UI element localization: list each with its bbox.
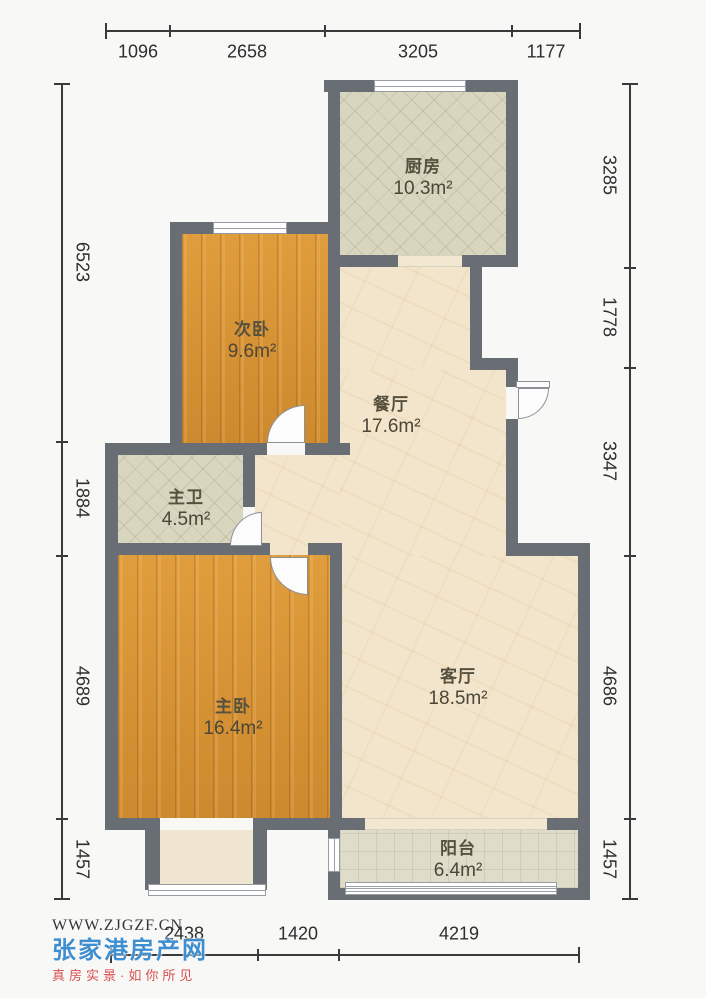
room-name: 主卧 [203,692,262,717]
wall-segment [462,255,518,267]
watermark-slogan: 真房实景·如你所见 [52,968,208,984]
dim-label: 1457 [72,839,93,879]
hallway-floor [255,455,340,555]
wall-segment [105,818,160,830]
dimension-line-left [61,83,63,900]
dim-tick [338,949,340,961]
room-name: 餐厅 [361,390,420,415]
dim-tick [169,25,171,37]
dim-label: 3347 [599,441,620,481]
dim-label: 2658 [227,42,267,63]
room-name: 次卧 [228,315,277,340]
dim-tick [624,267,636,269]
wall-segment [506,419,518,555]
kitchen-opening [398,255,462,267]
dim-tick [622,898,638,900]
dim-label: 6523 [72,242,93,282]
dimension-line-top [105,30,580,32]
wall-segment [253,830,267,890]
room-name: 客厅 [428,662,487,687]
wall-segment [170,222,182,455]
wall-segment [578,830,590,900]
wall-segment [105,443,118,830]
balcony-side-window [328,838,340,872]
room-area: 16.4m² [203,718,262,740]
room-area: 4.5m² [162,509,211,531]
room-label-kitchen: 厨房 10.3m² [393,152,452,200]
room-label-balcony: 阳台 6.4m² [434,834,483,882]
dim-tick [324,25,326,37]
room-label-master-bath: 主卫 4.5m² [162,483,211,531]
dimension-line-right [629,83,631,900]
dim-label: 1177 [527,42,566,63]
master-bedroom-floor [118,555,330,818]
room-label-master-bedroom: 主卧 16.4m² [203,692,262,740]
dim-tick [56,555,68,557]
entry-door-arc [518,388,549,419]
dim-label: 1457 [599,839,620,879]
bay-window-floor [160,830,253,886]
watermark: WWW.ZJGZF.CN 张家港房产网 真房实景·如你所见 [52,916,208,984]
balcony-window [345,882,557,895]
kitchen-window [374,80,466,92]
room-area: 9.6m² [228,341,277,363]
watermark-url: WWW.ZJGZF.CN [52,916,208,936]
wall-segment [330,555,342,830]
wall-segment [145,830,160,890]
room-area: 6.4m² [434,860,483,882]
dim-tick [624,555,636,557]
room-label-dining: 餐厅 17.6m² [361,390,420,438]
second-bedroom-window [213,222,287,234]
floor-plan: 厨房 10.3m² 次卧 9.6m² 餐厅 17.6m² 主卫 4.5m² 主卧… [0,0,706,998]
dim-label: 3205 [398,42,438,63]
bay-window [148,884,266,896]
dim-tick [579,23,581,39]
dim-label: 4689 [72,666,93,706]
wall-segment [470,358,518,370]
wall-segment [287,222,340,234]
dim-tick [257,949,259,961]
wall-segment [170,443,267,455]
dim-label: 1420 [278,924,318,945]
wall-segment [305,443,350,455]
dim-label: 1778 [599,297,620,337]
wall-segment [547,818,590,830]
dining-floor [340,267,470,370]
room-area: 10.3m² [393,178,452,200]
wall-segment [470,267,482,370]
room-area: 17.6m² [361,416,420,438]
dim-tick [622,83,638,85]
dim-tick [54,83,70,85]
dim-label: 1096 [118,42,158,63]
room-name: 阳台 [434,834,483,859]
dim-tick [56,818,68,820]
room-label-second-bedroom: 次卧 9.6m² [228,315,277,363]
dim-tick [578,947,580,963]
dim-tick [511,25,513,37]
entry-door-leaf [516,381,550,388]
dim-tick [105,23,107,39]
wall-segment [328,818,340,840]
dim-tick [56,441,68,443]
room-area: 18.5m² [428,688,487,710]
balcony-opening [365,818,547,830]
dim-tick [624,818,636,820]
wall-segment [506,80,518,267]
room-name: 厨房 [393,152,452,177]
dim-label: 4219 [439,924,479,945]
wall-segment [308,543,342,555]
wall-segment [243,455,255,507]
watermark-site-name: 张家港房产网 [52,936,208,966]
room-label-living: 客厅 18.5m² [428,662,487,710]
room-name: 主卫 [162,483,211,508]
dim-label: 4686 [599,666,620,706]
wall-segment [328,234,340,455]
dim-tick [624,367,636,369]
dim-label: 1884 [72,478,93,518]
dim-tick [54,898,70,900]
wall-segment [578,543,590,830]
dim-label: 3285 [599,155,620,195]
